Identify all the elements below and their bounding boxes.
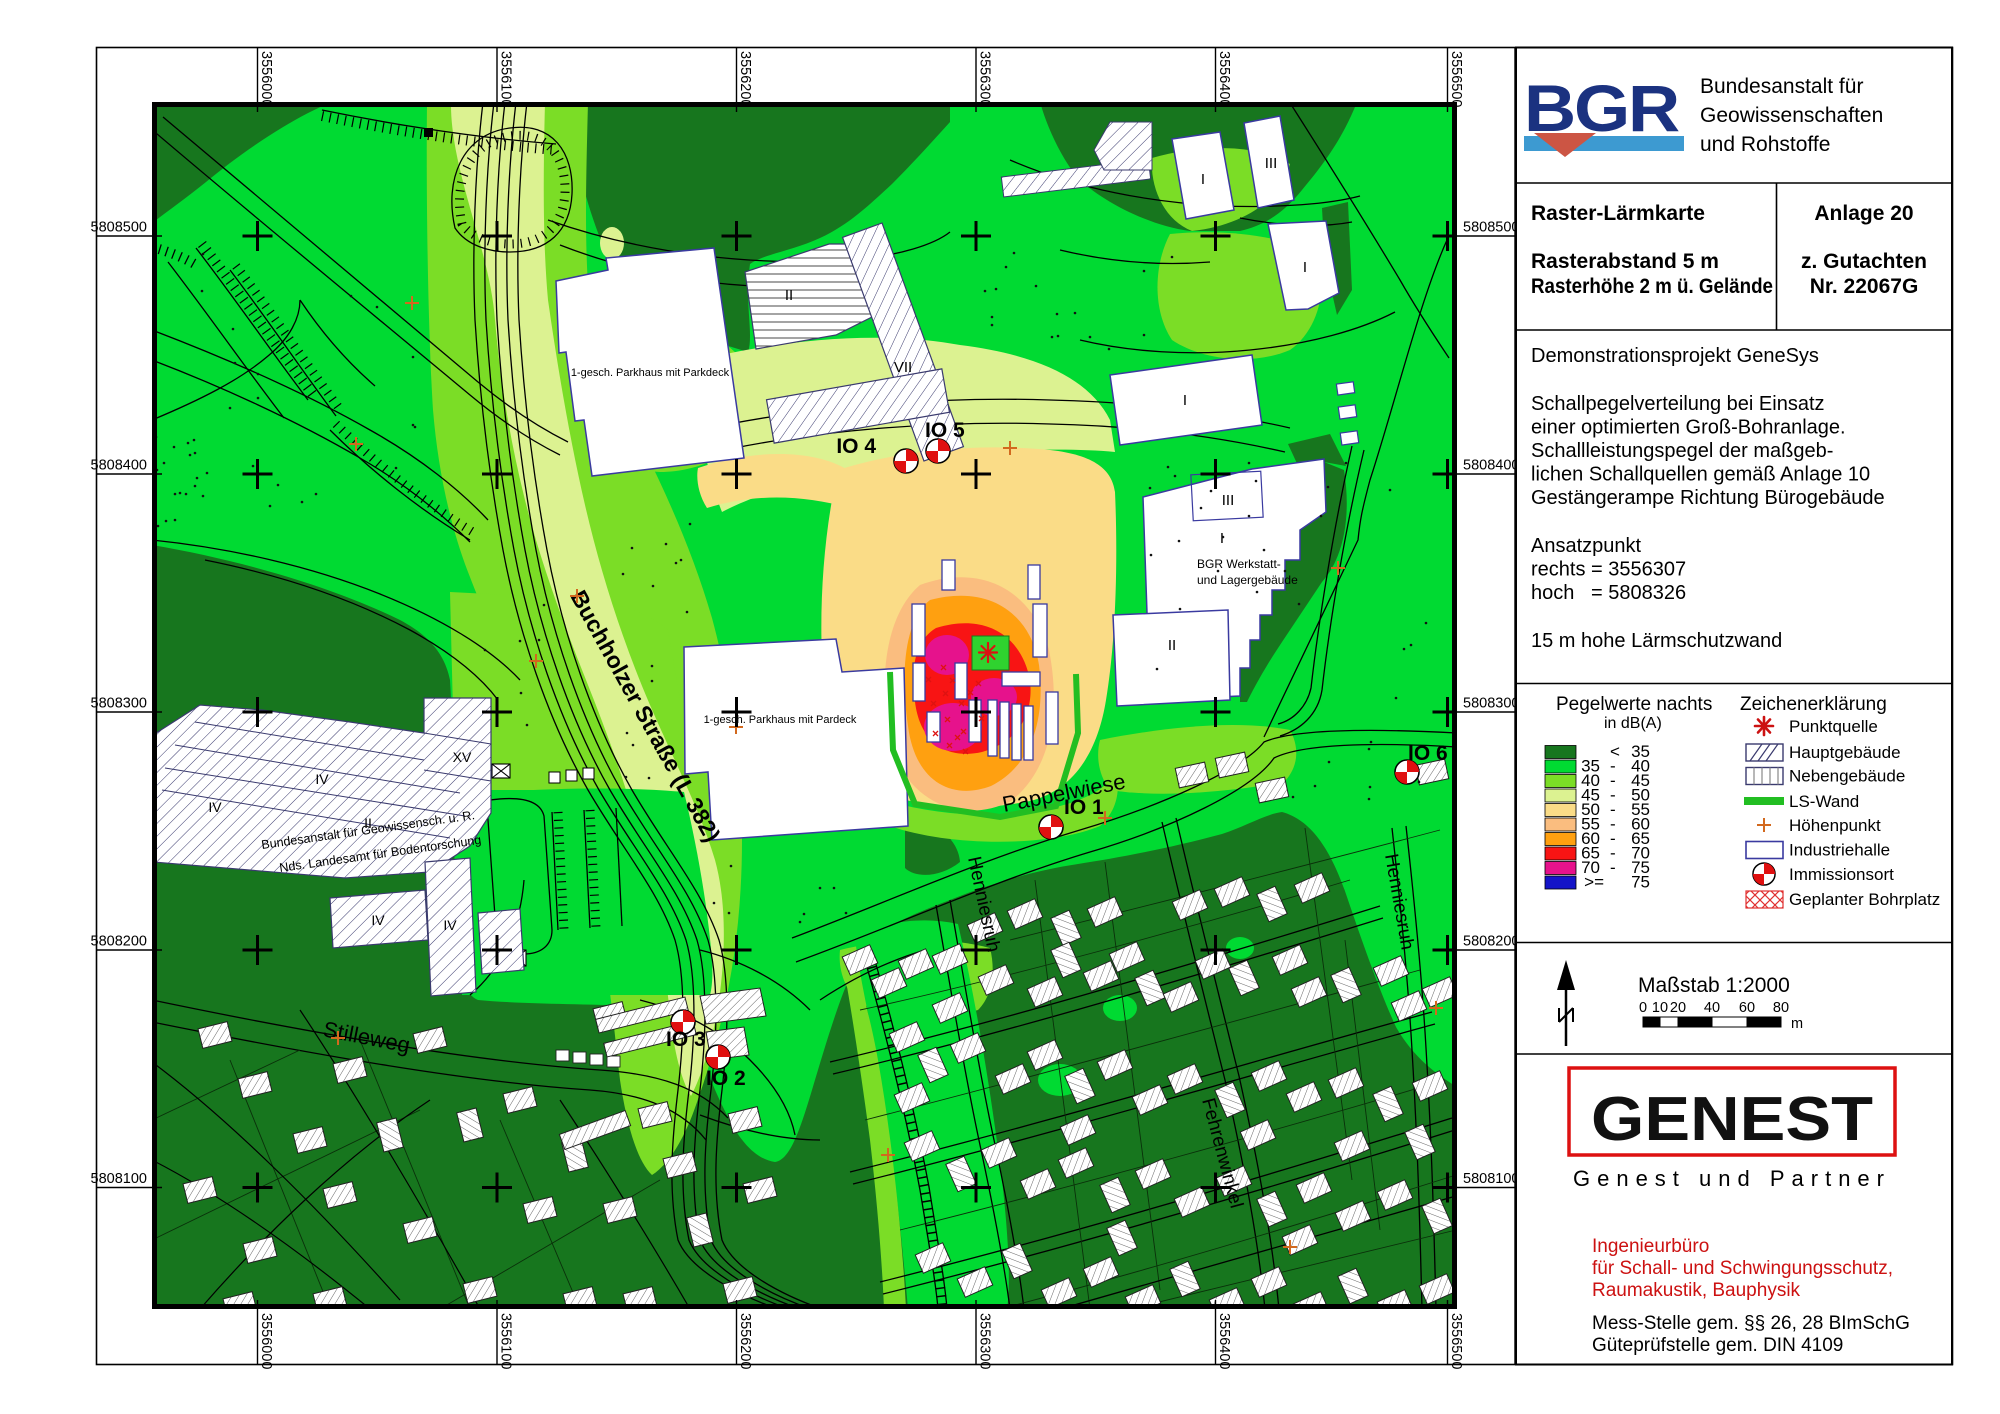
svg-text:Mess-Stelle gem. §§ 26, 28 BIm: Mess-Stelle gem. §§ 26, 28 BImSchG — [1592, 1313, 1910, 1334]
svg-text:0: 0 — [1639, 1000, 1647, 1016]
svg-text:3556200: 3556200 — [737, 1313, 753, 1369]
svg-text:3556000: 3556000 — [258, 51, 274, 107]
svg-text:Geowissenschaften: Geowissenschaften — [1700, 104, 1883, 127]
svg-text:IO 1: IO 1 — [1064, 796, 1104, 819]
svg-text:Punktquelle: Punktquelle — [1789, 717, 1878, 736]
svg-text:I: I — [1183, 392, 1187, 409]
svg-text:-: - — [1610, 858, 1616, 877]
svg-text:5808400: 5808400 — [91, 458, 147, 474]
svg-text:Raster-Lärmkarte: Raster-Lärmkarte — [1531, 202, 1705, 225]
svg-text:Industriehalle: Industriehalle — [1789, 841, 1890, 860]
svg-text:Genest und Partner: Genest und Partner — [1573, 1166, 1891, 1191]
svg-text:1-gesch. Parkhaus mit Parkdeck: 1-gesch. Parkhaus mit Parkdeck — [571, 367, 730, 379]
svg-text:I: I — [1220, 530, 1224, 547]
svg-text:LS-Wand: LS-Wand — [1789, 792, 1859, 811]
svg-text:I: I — [1303, 259, 1307, 276]
svg-text:Geplanter Bohrplatz: Geplanter Bohrplatz — [1789, 890, 1940, 909]
svg-text:Raumakustik, Bauphysik: Raumakustik, Bauphysik — [1592, 1280, 1801, 1301]
svg-text:3556300: 3556300 — [977, 1313, 993, 1369]
svg-text:3556400: 3556400 — [1216, 1313, 1232, 1369]
svg-text:5808500: 5808500 — [1463, 220, 1519, 236]
svg-text:Zeichenerklärung: Zeichenerklärung — [1740, 694, 1887, 715]
svg-text:5808200: 5808200 — [91, 934, 147, 950]
svg-text:IV: IV — [443, 917, 457, 933]
svg-text:III: III — [1265, 155, 1278, 172]
svg-text:3556100: 3556100 — [498, 51, 514, 107]
svg-text:Ansatzpunkt: Ansatzpunkt — [1531, 535, 1642, 557]
svg-text:IO 5: IO 5 — [925, 419, 965, 442]
svg-text:5808500: 5808500 — [91, 220, 147, 236]
svg-text:>=: >= — [1584, 873, 1604, 892]
svg-text:einer optimierten Groß-Bohranl: einer optimierten Groß-Bohranlage. — [1531, 417, 1846, 439]
svg-text:Maßstab 1:2000: Maßstab 1:2000 — [1638, 974, 1790, 997]
svg-text:5808100: 5808100 — [1463, 1171, 1519, 1187]
svg-text:5808300: 5808300 — [91, 696, 147, 712]
svg-text:Anlage 20: Anlage 20 — [1814, 202, 1913, 225]
svg-text:Bundesanstalt für: Bundesanstalt für — [1700, 75, 1863, 98]
svg-text:5808200: 5808200 — [1463, 934, 1519, 950]
svg-text:Nebengebäude: Nebengebäude — [1789, 767, 1905, 786]
svg-text:IV: IV — [371, 912, 385, 928]
svg-text:II: II — [1168, 637, 1176, 654]
svg-text:Gestängerampe Richtung Bürogeb: Gestängerampe Richtung Bürogebäude — [1531, 487, 1885, 509]
svg-text:XV: XV — [453, 749, 472, 765]
svg-text:z. Gutachten: z. Gutachten — [1801, 250, 1927, 273]
svg-text:Schallleistungspegel der maßge: Schallleistungspegel der maßgeb- — [1531, 440, 1833, 462]
svg-text:5808300: 5808300 — [1463, 696, 1519, 712]
svg-text:Rasterhöhe 2 m ü. Gelände: Rasterhöhe 2 m ü. Gelände — [1531, 275, 1773, 298]
svg-text:VII: VII — [894, 359, 912, 376]
svg-text:3556500: 3556500 — [1448, 51, 1464, 107]
svg-text:IO 2: IO 2 — [706, 1067, 746, 1090]
svg-text:75: 75 — [1631, 873, 1650, 892]
svg-text:3556300: 3556300 — [977, 51, 993, 107]
svg-text:Nr. 22067G: Nr. 22067G — [1810, 275, 1919, 298]
svg-text:5808400: 5808400 — [1463, 458, 1519, 474]
svg-text:GENEST: GENEST — [1591, 1085, 1873, 1154]
svg-text:3556200: 3556200 — [737, 51, 753, 107]
svg-text:1-gesch. Parkhaus mit Pardeck: 1-gesch. Parkhaus mit Pardeck — [704, 714, 857, 726]
svg-text:40: 40 — [1704, 1000, 1720, 1016]
svg-text:Demonstrationsprojekt GeneSys: Demonstrationsprojekt GeneSys — [1531, 345, 1819, 367]
svg-text:IO 4: IO 4 — [836, 435, 876, 458]
svg-text:lichen Schallquellen gemäß Anl: lichen Schallquellen gemäß Anlage 10 — [1531, 464, 1870, 486]
svg-text:Güteprüfstelle gem. DIN 4109: Güteprüfstelle gem. DIN 4109 — [1592, 1335, 1843, 1356]
svg-text:3556500: 3556500 — [1448, 1313, 1464, 1369]
svg-text:80: 80 — [1773, 1000, 1789, 1016]
svg-text:60: 60 — [1739, 1000, 1755, 1016]
svg-text:3556000: 3556000 — [258, 1313, 274, 1369]
svg-text:IO 6: IO 6 — [1408, 742, 1448, 765]
svg-text:IV: IV — [208, 799, 222, 815]
svg-text:3556400: 3556400 — [1216, 51, 1232, 107]
svg-text:hoch = 5808326: hoch = 5808326 — [1531, 582, 1686, 604]
svg-text:II: II — [785, 287, 793, 304]
svg-text:m: m — [1791, 1016, 1803, 1032]
svg-text:für Schall- und Schwingungssch: für Schall- und Schwingungsschutz, — [1592, 1258, 1893, 1279]
svg-text:rechts = 3556307: rechts = 3556307 — [1531, 559, 1686, 581]
svg-text:Rasterabstand 5 m: Rasterabstand 5 m — [1531, 250, 1719, 273]
svg-text:und Rohstoffe: und Rohstoffe — [1700, 133, 1830, 156]
svg-text:5808100: 5808100 — [91, 1171, 147, 1187]
svg-text:Ingenieurbüro: Ingenieurbüro — [1592, 1236, 1709, 1257]
svg-text:15 m hohe Lärmschutzwand: 15 m hohe Lärmschutzwand — [1531, 630, 1782, 652]
svg-text:I: I — [1201, 171, 1205, 188]
svg-text:10: 10 — [1652, 1000, 1668, 1016]
svg-text:und Lagergebäude: und Lagergebäude — [1197, 573, 1298, 587]
svg-text:Schallpegelverteilung bei Eins: Schallpegelverteilung bei Einsatz — [1531, 393, 1825, 415]
svg-text:Immissionsort: Immissionsort — [1789, 865, 1894, 884]
svg-text:3556100: 3556100 — [498, 1313, 514, 1369]
svg-text:Hauptgebäude: Hauptgebäude — [1789, 743, 1901, 762]
svg-text:BGR Werkstatt-: BGR Werkstatt- — [1197, 557, 1281, 571]
svg-text:III: III — [1222, 492, 1235, 509]
svg-text:in dB(A): in dB(A) — [1604, 715, 1662, 732]
svg-text:IV: IV — [315, 771, 329, 787]
svg-text:Höhenpunkt: Höhenpunkt — [1789, 816, 1881, 835]
svg-text:Pegelwerte nachts: Pegelwerte nachts — [1556, 694, 1712, 715]
svg-text:IO 3: IO 3 — [666, 1028, 706, 1051]
svg-text:20: 20 — [1670, 1000, 1686, 1016]
